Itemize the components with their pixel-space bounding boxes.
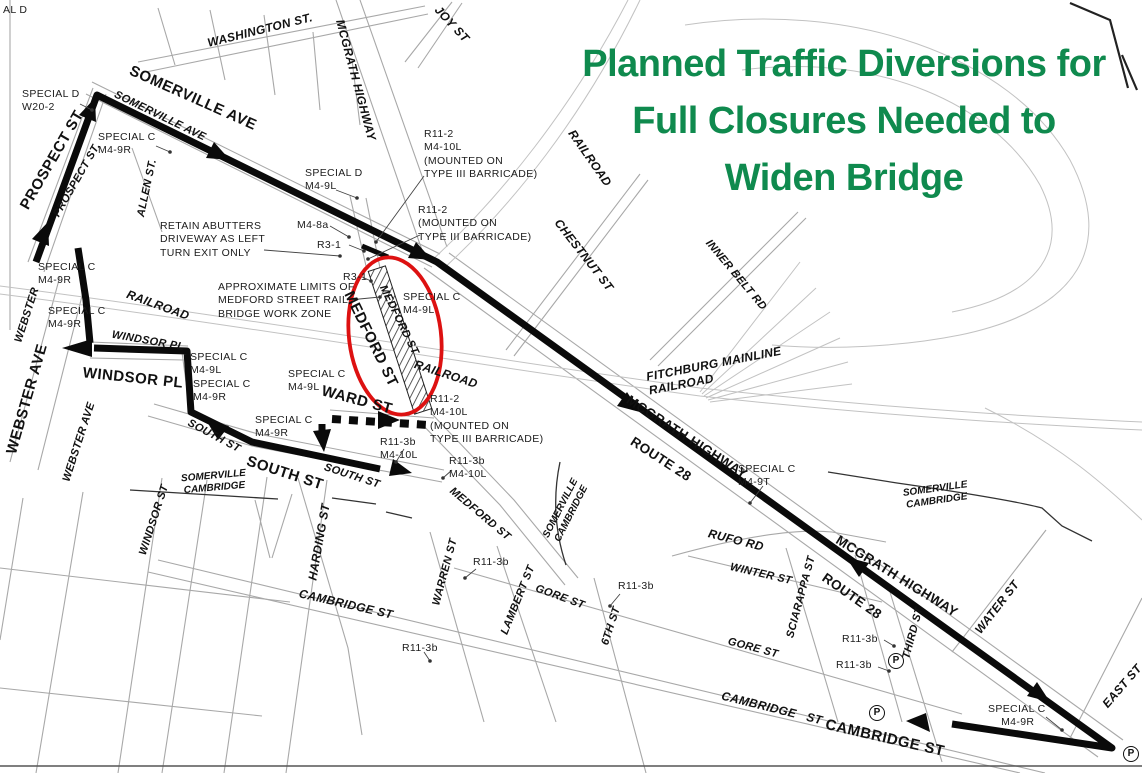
note-retain-abutters: RETAIN ABUTTERS DRIVEWAY AS LEFT TURN EX… [160,220,265,260]
sign-callout-r11-3b-m4-10l: R11-3b M4-10L [380,436,418,463]
street-label-winter-st: WINTER ST [729,561,793,587]
street-label-inner-belt-rd: INNER BELT RD [703,237,769,312]
city-boundary-label: SOMERVILLE CAMBRIDGE [902,479,970,511]
street-label-south-st-italic: SOUTH ST [186,417,243,455]
street-label-washington-st: WASHINGTON ST. [206,10,314,50]
sign-callout-special-d-w20-2: SPECIAL D W20-2 [22,88,80,115]
parking-symbol: P [1123,746,1139,762]
sign-callout-special-c-m4-9l: SPECIAL C M4-9L [190,351,248,378]
street-label-warren-st: WARREN ST [430,537,459,606]
street-label-east-st: EAST ST [1099,661,1142,710]
street-label-windsor-pl: WINDSOR PL [82,364,184,391]
sign-callout-partial: AL D [3,4,27,17]
street-label-rufo-rd: RUFO RD [707,526,765,553]
street-label-cambridge-st-italic: CAMBRIDGE ST [720,689,824,728]
street-label-webster-ave-italic: WEBSTER AVE [61,401,98,483]
sign-callout-special-c-m4-9r: SPECIAL C M4-9R [988,703,1046,730]
sign-callout-r3-1: R3-1 [317,239,341,252]
street-label-somerville-ave: SOMERVILLE AVE [127,62,260,133]
page-title: Planned Traffic Diversions for Full Clos… [548,36,1140,207]
sign-callout-r11-3b: R11-3b [842,633,878,646]
street-label-gore-st: GORE ST [534,583,587,612]
street-label-allen-st: ALLEN ST. [135,158,159,218]
street-label-route-28: ROUTE 28 [819,570,884,622]
street-label-mcgrath-highway: MCGRATH HIGHWAY [833,532,961,619]
parking-symbol: P [869,705,885,721]
sign-callout-special-c-m4-9r: SPECIAL C M4-9R [255,414,313,441]
street-label-lambert-st: LAMBERT ST [499,564,538,637]
street-label-medford-st-italic: MEDFORD ST [447,485,513,543]
sign-callout-special-c-m4-9t: SPECIAL C M4-9T [738,463,796,490]
street-label-south-st-italic: SOUTH ST [323,461,382,490]
street-label-chestnut-st: CHESTNUT ST [552,216,617,293]
street-label-prospect-st: PROSPECT ST [17,108,87,213]
sign-callout-special-c-m4-9l: SPECIAL C M4-9L [288,368,346,395]
sign-callout-r11-2-m4-10l: R11-2 M4-10L (MOUNTED ON TYPE III BARRIC… [430,393,543,446]
sign-callout-r11-2: R11-2 (MOUNTED ON TYPE III BARRICADE) [418,204,531,244]
street-label-water-st: WATER ST [972,578,1022,637]
sign-callout-r11-3b: R11-3b [473,556,509,569]
street-label-gore-st: GORE ST [727,636,780,661]
sign-callout-special-d-m4-9l: SPECIAL D M4-9L [305,167,363,194]
note-work-zone-limits: APPROXIMATE LIMITS OF MEDFORD STREET RAI… [218,281,355,321]
street-label-6th-st: 6TH ST [599,605,623,646]
street-label-cambridge-st-italic: CAMBRIDGE ST [298,586,395,621]
sign-callout-r11-3b: R11-3b [402,642,438,655]
street-label-webster-ave: WEBSTER AVE [3,342,51,456]
railroad-label: RAILROAD [125,287,192,323]
street-label-harding-st: HARDING ST [305,503,332,582]
street-label-cambridge-st: CAMBRIDGE ST [824,716,947,760]
sign-callout-r11-3b: R11-3b [836,659,872,672]
sign-callout-special-c-m4-9r: SPECIAL C M4-9R [98,131,156,158]
sign-callout-special-c-m4-9r: SPECIAL C M4-9R [48,305,106,332]
street-label-windsor-st: WINDSOR ST [137,483,171,556]
sign-callout-r11-3b: R11-3b [618,580,654,593]
sign-callout-r11-3b-m4-10l: R11-3b M4-10L [449,455,487,482]
street-label-third-st: THIRD ST [900,606,925,660]
sign-callout-special-c-m4-9r: SPECIAL C M4-9R [38,261,96,288]
street-label-sciarappa-st: SCIARAPPA ST [784,555,817,640]
traffic-diversion-map: SOMERVILLE AVEPROSPECT STWEBSTER AVEWIND… [0,0,1142,773]
city-boundary-label: SOMERVILLE CAMBRIDGE [181,468,248,497]
sign-callout-special-c-m4-9r: SPECIAL C M4-9R [193,378,251,405]
street-label-south-st: SOUTH ST [244,453,325,494]
street-label-joy-st: JOY ST [432,3,472,45]
sign-callout-special-c-m4-9l: SPECIAL C M4-9L [403,291,461,318]
sign-callout-r11-2-m4-10l: R11-2 M4-10L (MOUNTED ON TYPE III BARRIC… [424,128,537,181]
city-boundary-label: SOMERVILLE CAMBRIDGE [541,477,591,545]
railroad-label: RAILROAD [413,357,480,391]
sign-callout-m4-8a: M4-8a [297,219,329,232]
street-label-webster: WEBSTER [12,286,41,344]
parking-symbol: P [888,653,904,669]
railroad-label-fitchburg: FITCHBURG MAINLINE RAILROAD [645,344,785,398]
street-label-mcgrath-highway-italic: MCGRATH HIGHWAY [333,18,379,142]
street-label-windsor-pl-italic: WINDSOR PL [111,329,185,354]
